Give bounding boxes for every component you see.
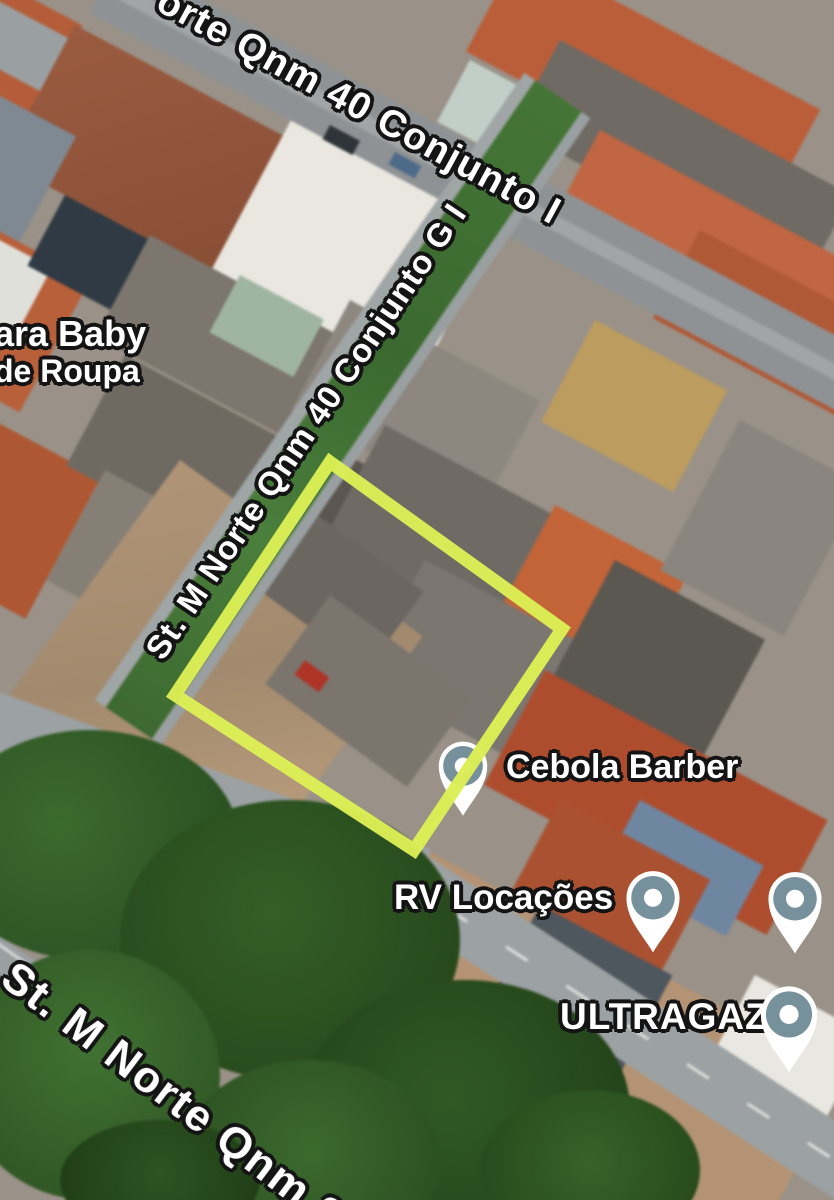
rv-locacoes-pin-icon[interactable] <box>619 866 687 956</box>
poi-label-baby-roupa[interactable]: ara Baby de Roupa <box>0 314 146 390</box>
unlabeled-poi-pin-icon[interactable] <box>761 867 829 957</box>
poi-label-rv-locacoes[interactable]: RV Locações <box>394 878 613 918</box>
poi-label-cebola-barber[interactable]: Cebola Barber <box>506 748 738 787</box>
poi-label-line2: de Roupa <box>0 354 146 390</box>
satellite-map-canvas[interactable]: orte Qnm 40 Conjunto I St. M Norte Qnm 4… <box>0 0 834 1200</box>
cebola-barber-pin-icon[interactable] <box>432 737 494 819</box>
building-roof <box>541 320 727 492</box>
poi-label-line1: ara Baby <box>0 314 146 354</box>
ultragaz-pin-icon[interactable] <box>753 981 825 1076</box>
poi-label-ultragaz[interactable]: ULTRAGAZ <box>560 996 769 1038</box>
